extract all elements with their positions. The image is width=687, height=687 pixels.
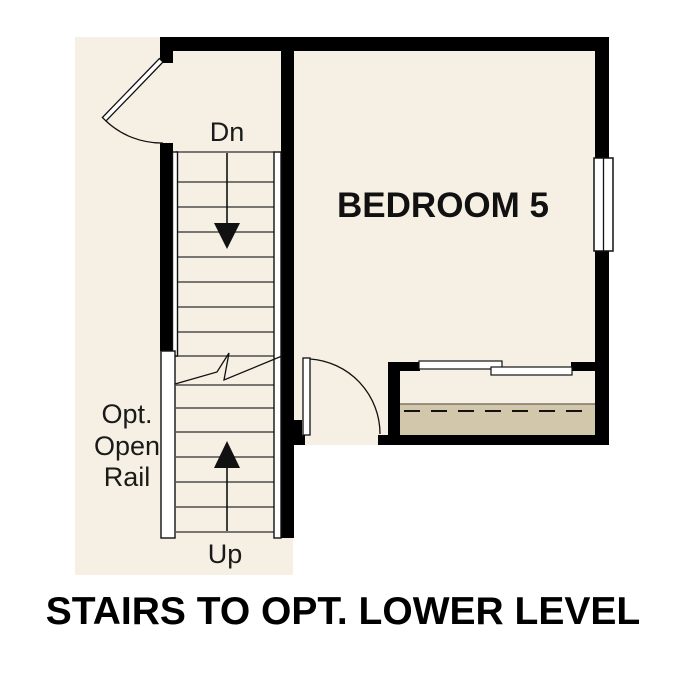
- floor-plan-page: Dn Up Opt. Open Rail BEDROOM 5 STAIRS TO…: [0, 0, 687, 687]
- open-rail-stringer-left: [161, 351, 175, 538]
- open-rail-note-line3: Rail: [104, 462, 151, 492]
- bypass-door-panel-left: [419, 361, 502, 369]
- open-rail-note-line2: Open: [94, 431, 160, 461]
- right-wall-upper: [595, 37, 609, 158]
- window: [594, 158, 613, 251]
- plan-caption: STAIRS TO OPT. LOWER LEVEL: [46, 590, 640, 633]
- open-rail-note: Opt. Open Rail: [94, 399, 160, 492]
- right-wall-lower: [595, 250, 609, 445]
- floor-area: [75, 37, 609, 575]
- bottom-wall-right: [378, 435, 609, 445]
- interior-wall: [281, 37, 294, 538]
- stair-stringer-upper-left: [173, 152, 178, 356]
- open-rail-note-line1: Opt.: [101, 399, 152, 429]
- closet-shelf-area: [400, 404, 595, 435]
- closet-top-left-stub: [388, 362, 420, 371]
- left-wall-upper-stub: [160, 37, 173, 63]
- closet-top-right-stub: [571, 362, 595, 371]
- closet-left-wall: [388, 362, 400, 435]
- bypass-door-panel-right: [491, 367, 572, 375]
- stair-stringer-right: [274, 152, 281, 538]
- stairs-down-label: Dn: [210, 117, 245, 147]
- stairs-up-label: Up: [208, 539, 243, 569]
- room-label: BEDROOM 5: [337, 186, 549, 225]
- bottom-wall-left: [294, 435, 305, 445]
- floor-plan-drawing: Dn Up Opt. Open Rail BEDROOM 5 STAIRS TO…: [0, 0, 687, 687]
- left-wall-middle: [160, 143, 173, 351]
- bedroom-door-leaf: [303, 358, 310, 435]
- top-wall: [160, 37, 609, 51]
